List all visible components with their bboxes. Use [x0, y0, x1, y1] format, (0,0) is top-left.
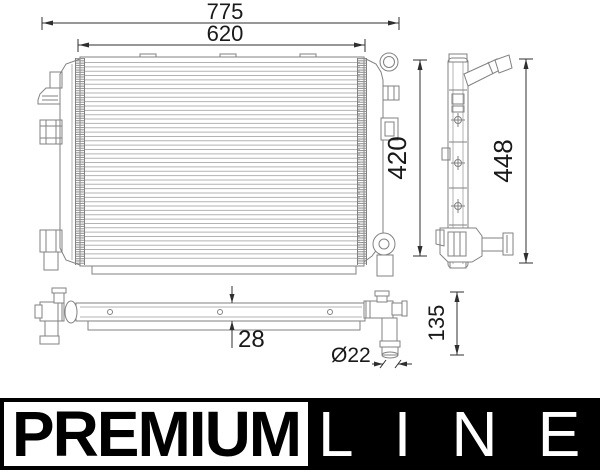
outlet-pipe: [382, 318, 397, 341]
bottom-outlet-fitting: [436, 228, 513, 268]
dim-pipe-diameter-value: Ø22: [331, 344, 371, 367]
dim-core-height-value: 420: [382, 136, 412, 179]
radiator-technical-drawing-page: 775 620 420: [0, 0, 600, 472]
bottom-strip: [92, 266, 356, 274]
dim-core-width: 620: [78, 21, 365, 52]
bottom-bar: [76, 303, 365, 321]
dim-overall-height: 448: [488, 59, 533, 263]
drawing-area: 775 620 420: [0, 0, 600, 398]
dim-lower-view-height: 135: [424, 292, 464, 355]
dim-overall-height-value: 448: [488, 139, 518, 182]
premium-label: PREMIUM: [12, 402, 300, 466]
dim-core-width-value: 620: [207, 21, 244, 46]
line-label: LINE: [318, 402, 600, 466]
dim-pipe-diameter: Ø22: [331, 344, 412, 368]
dim-lower-view-height-value: 135: [424, 305, 449, 342]
top-hose-fitting: [464, 55, 512, 86]
left-tank: [38, 59, 80, 270]
front-view: [38, 53, 399, 276]
filler-cap: [380, 53, 398, 71]
bottom-left-fitting: [35, 288, 77, 344]
dim-core-depth: 28: [230, 286, 265, 353]
core-edge: [88, 321, 360, 330]
premium-badge: PREMIUM: [4, 402, 308, 466]
dim-core-depth-value: 28: [238, 326, 265, 353]
drain-boss: [373, 233, 395, 255]
premium-line-logo: PREMIUM LINE: [0, 398, 600, 470]
